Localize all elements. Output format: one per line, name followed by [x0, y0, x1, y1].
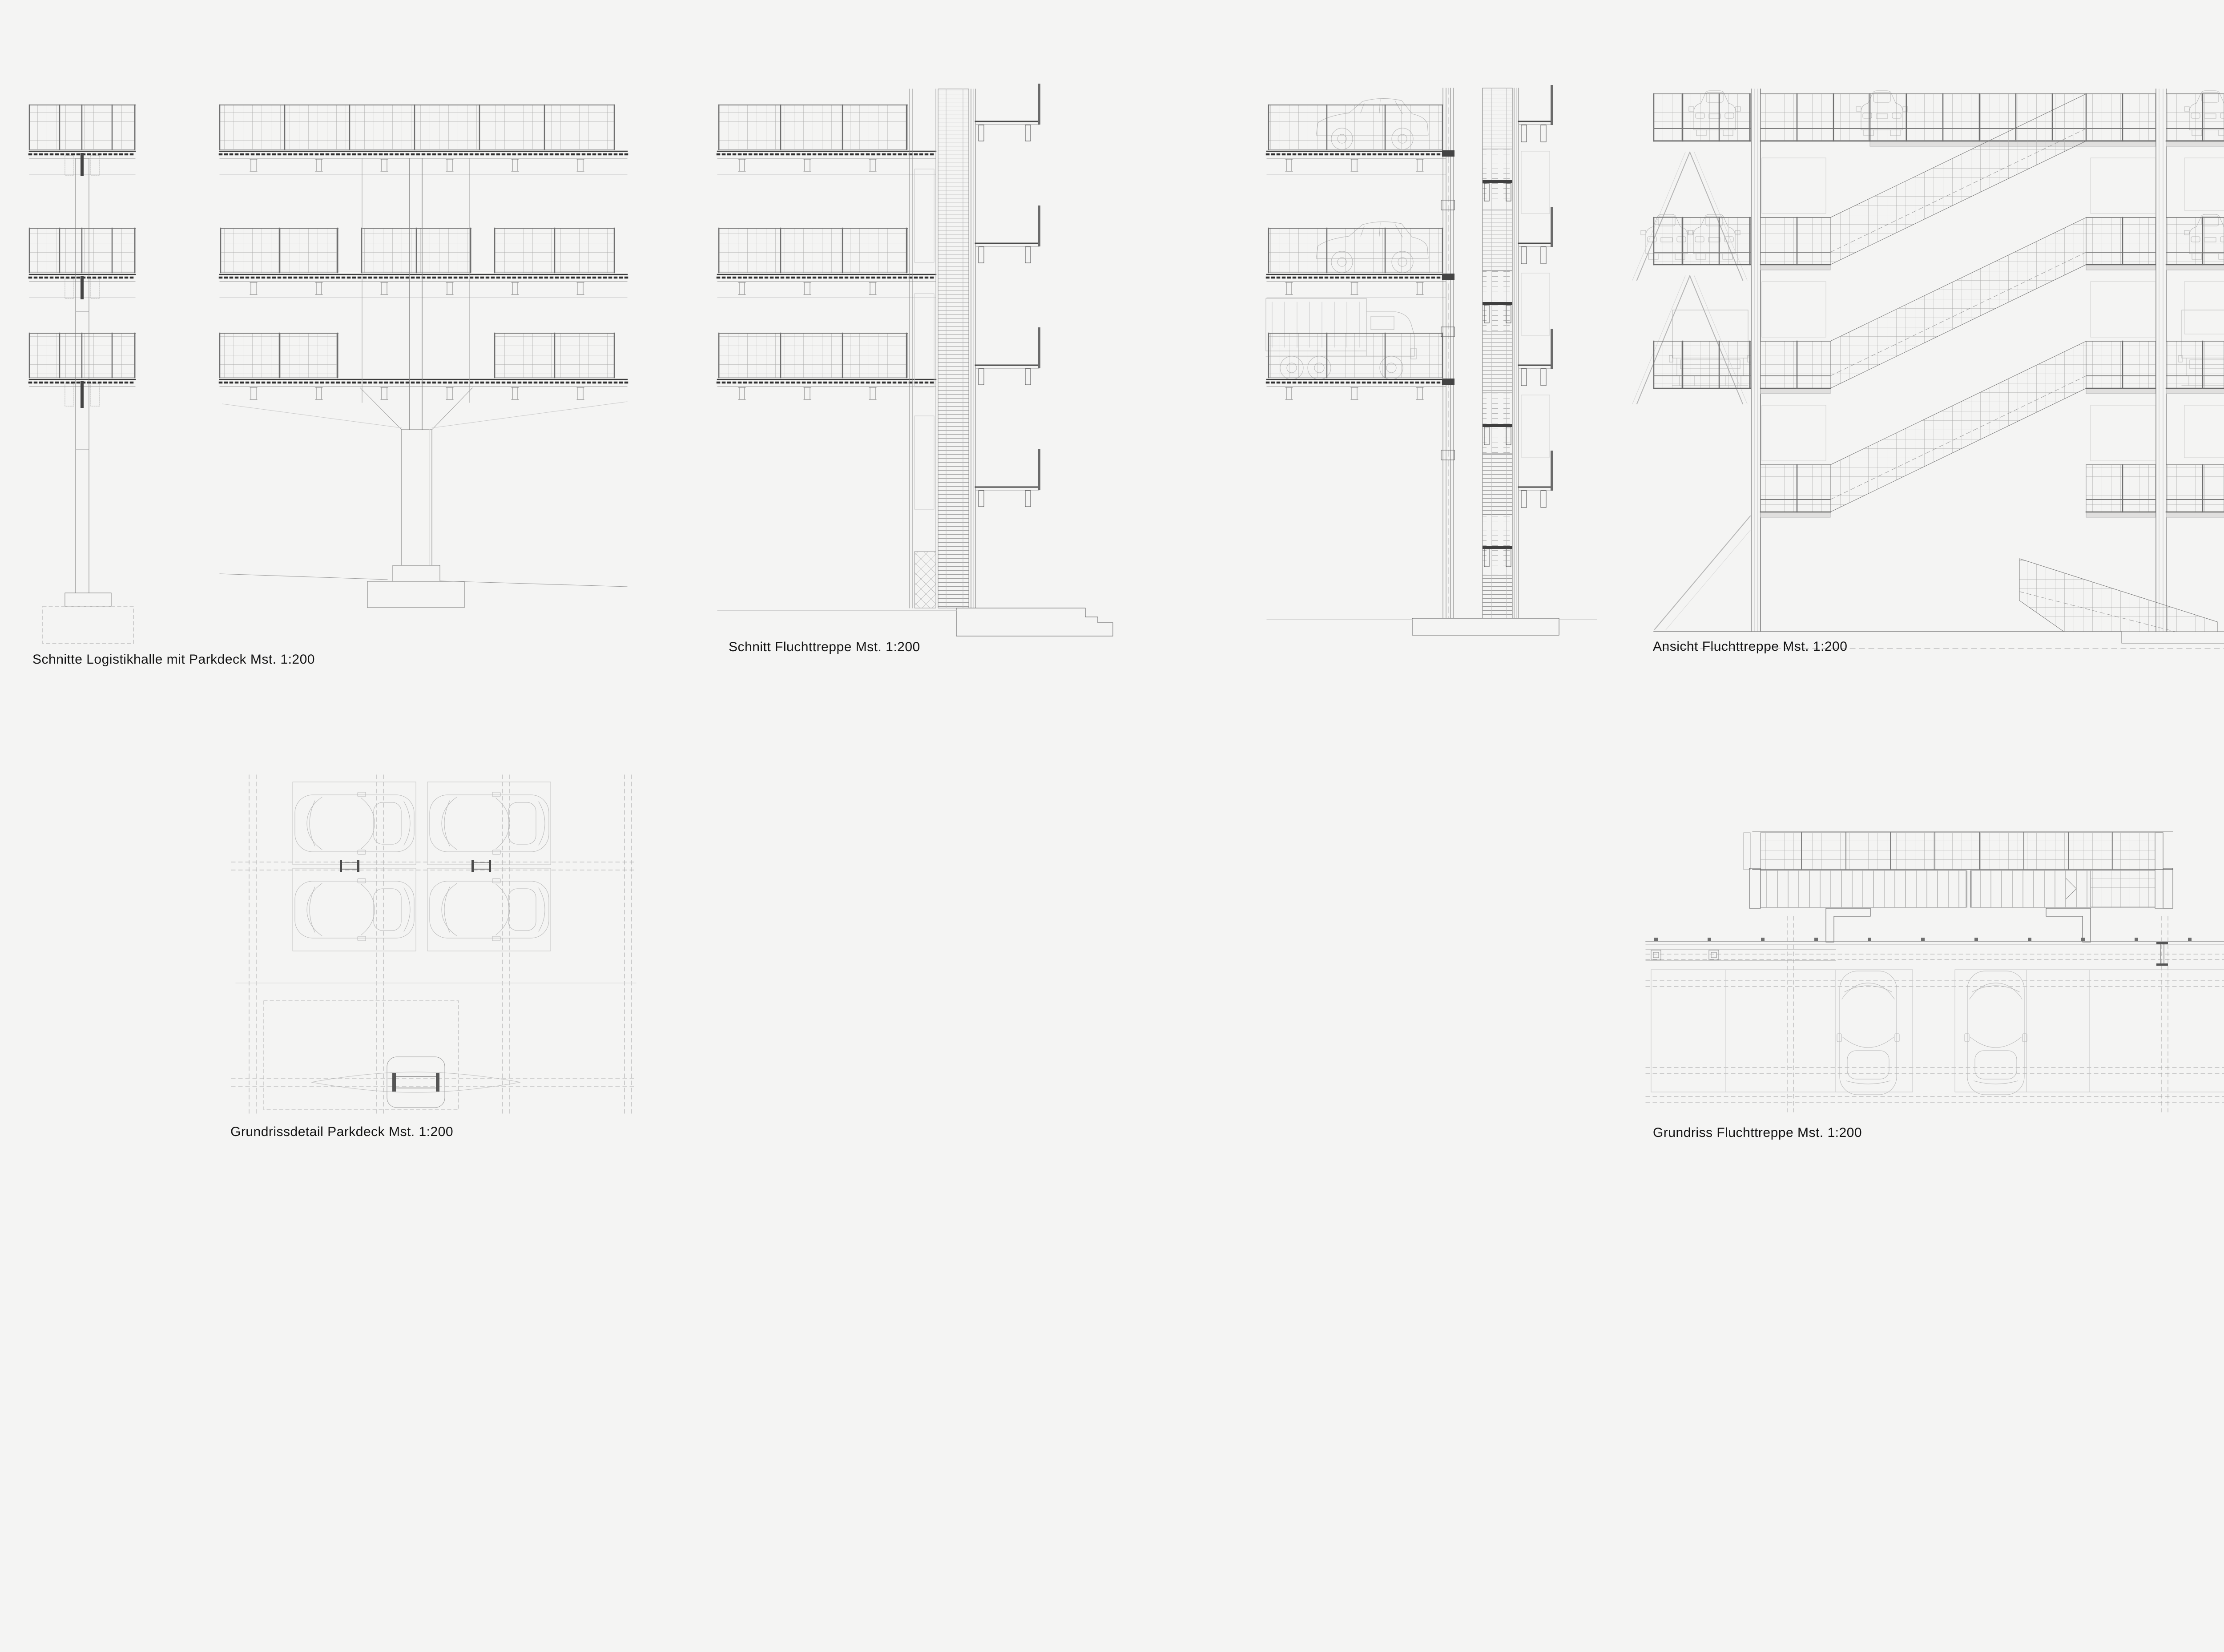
- right-bay: [2166, 94, 2224, 517]
- section-wide-pier: [220, 105, 627, 608]
- cars-top-view: [1837, 971, 2027, 1095]
- column: [1441, 88, 1454, 618]
- foundation: [43, 593, 133, 644]
- guardrail-mesh: [29, 105, 135, 378]
- figure-caption: Ansicht Fluchttreppe Mst. 1:200: [1653, 639, 1847, 654]
- grid-lines: [1646, 916, 2224, 1112]
- figure-caption: Schnitt Fluchttreppe Mst. 1:200: [729, 640, 920, 655]
- stair-landings: [1519, 85, 1553, 508]
- stair-bay: [1761, 94, 2217, 632]
- left-bay: [1632, 94, 1751, 630]
- cars-top-view: [295, 792, 549, 941]
- foundation: [717, 608, 1113, 636]
- guardrail-mesh: [1269, 105, 1443, 378]
- stair-enclosure-plan: [1744, 832, 2173, 942]
- figure-grundriss-fluchttreppe: [1646, 832, 2224, 1112]
- drawing-sheet: [0, 0, 2224, 1652]
- figure-ansicht-fluchttreppe: [1632, 89, 2224, 649]
- parking-stalls: [293, 782, 551, 951]
- column-base-detail: [264, 1001, 520, 1110]
- grid-lines: [231, 775, 636, 1114]
- stair-tower: [910, 89, 975, 608]
- foundation: [220, 565, 627, 608]
- section-slim-column: [29, 105, 135, 644]
- guardrail-mesh: [719, 105, 907, 378]
- figure-caption: Grundriss Fluchttreppe Mst. 1:200: [1653, 1125, 1862, 1140]
- figure-caption: Schnitte Logistikhalle mit Parkdeck Mst.…: [32, 652, 315, 667]
- figure-schnitt-fluchttreppe: [717, 84, 1113, 636]
- guardrail-mesh: [220, 105, 615, 378]
- figure-caption: Grundrissdetail Parkdeck Mst. 1:200: [230, 1124, 453, 1140]
- figure-schnitte-logistikhalle: [29, 105, 627, 644]
- stair-landings: [975, 84, 1040, 507]
- figure-schnitt-parkdeck-fahrzeuge: [1266, 85, 1597, 635]
- figure-grundrissdetail-parkdeck: [231, 775, 636, 1114]
- parking-stalls: [1651, 970, 2224, 1092]
- stair-tower: [1483, 88, 1519, 618]
- foundation: [1267, 618, 1597, 635]
- deck-edge-plan: [1646, 938, 2224, 966]
